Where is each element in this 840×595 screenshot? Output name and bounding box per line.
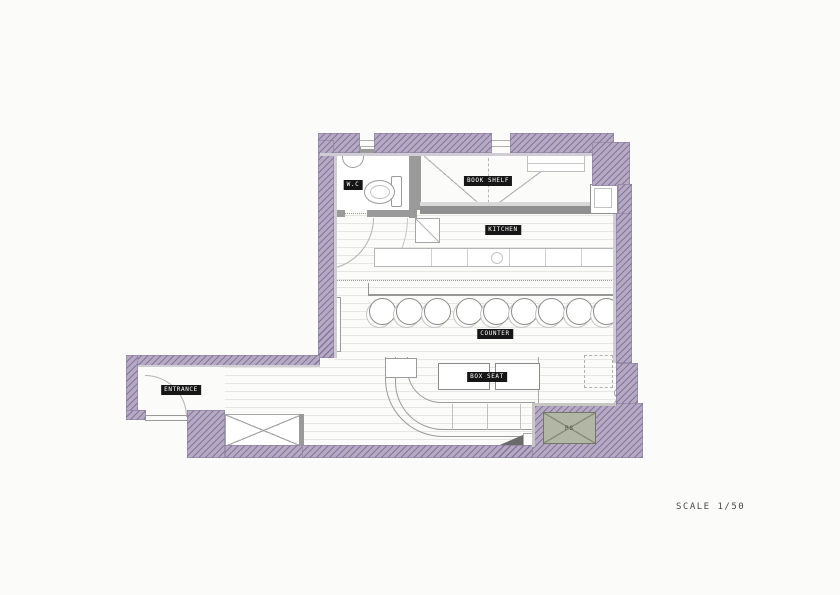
wall-lining — [613, 214, 616, 363]
pipe-space-label: PS — [565, 425, 574, 432]
wall-niche — [590, 184, 618, 214]
counter-end-cap — [368, 283, 369, 295]
window-glazing-line — [360, 140, 374, 141]
floor-plan-sheet: PS W.C BOOK SHELF KITCHEN COUNTER BOX SE… — [0, 0, 840, 595]
booth-seat-division — [520, 404, 521, 430]
entrance-threshold — [145, 415, 187, 421]
wall-lining — [138, 365, 320, 367]
wall-bottom-main — [302, 445, 533, 458]
counter-stool — [396, 298, 423, 325]
wall-extension-left — [126, 355, 138, 418]
island-division — [545, 249, 546, 266]
kitchen-pass-hatch — [415, 218, 440, 243]
counter-stool — [483, 298, 510, 325]
wall-bottom-under-window — [225, 445, 305, 458]
wall-top-2 — [374, 133, 492, 153]
window-glazing-line — [360, 146, 374, 147]
counter-stool — [424, 298, 451, 325]
braced-window-panel — [225, 414, 302, 447]
label-box-seat: BOX SEAT — [467, 372, 507, 382]
window-glazing-line — [492, 146, 510, 147]
label-wc: W.C — [344, 180, 363, 190]
window-glazing-line — [492, 140, 510, 141]
wall-left-main — [318, 140, 334, 358]
floor-corridor — [225, 367, 302, 415]
wall-extension-stub — [126, 410, 146, 420]
label-book-shelf: BOOK SHELF — [464, 176, 512, 186]
wc-wall-bottom — [367, 210, 417, 217]
wall-right-lower — [616, 363, 638, 405]
counter-front-edge — [368, 294, 618, 296]
counter-stool — [511, 298, 538, 325]
wall-right-upper — [592, 142, 630, 186]
wall-lining — [334, 153, 337, 358]
scale-note: SCALE 1/50 — [676, 502, 745, 512]
wall-right-mid — [616, 213, 632, 363]
counter-stool — [369, 298, 396, 325]
wall-right-beside-niche — [618, 184, 632, 214]
niche-shelf — [594, 188, 612, 208]
counter-stool — [456, 298, 483, 325]
wall-bottom-chunk — [187, 410, 225, 458]
island-division — [581, 249, 582, 266]
counter-stool — [538, 298, 565, 325]
island-division — [467, 249, 468, 266]
window-jamb — [299, 414, 304, 447]
overhead-dashed-outline — [584, 355, 613, 388]
shelf-unit-line — [528, 163, 584, 164]
booth-seat-division — [487, 404, 488, 430]
wall-lining — [320, 153, 592, 156]
kitchen-island — [374, 248, 622, 267]
island-sink — [491, 252, 503, 264]
floor-lower-area — [302, 367, 334, 447]
label-kitchen: KITCHEN — [485, 225, 521, 235]
kitchen-pass-diagonal — [416, 219, 439, 242]
label-counter: COUNTER — [477, 329, 513, 339]
booth-seat-division — [452, 404, 453, 430]
pipe-space-box: PS — [543, 412, 596, 444]
wall-lining — [532, 403, 535, 447]
wall-lining — [532, 403, 616, 406]
booth-corner-shelf — [385, 358, 417, 378]
wc-door-opening — [345, 213, 368, 214]
island-division — [431, 249, 432, 266]
counter-stool — [566, 298, 593, 325]
toilet-seat — [370, 185, 390, 199]
label-entrance: ENTRANCE — [161, 385, 201, 395]
service-dotted-line — [334, 280, 616, 281]
island-division — [509, 249, 510, 266]
